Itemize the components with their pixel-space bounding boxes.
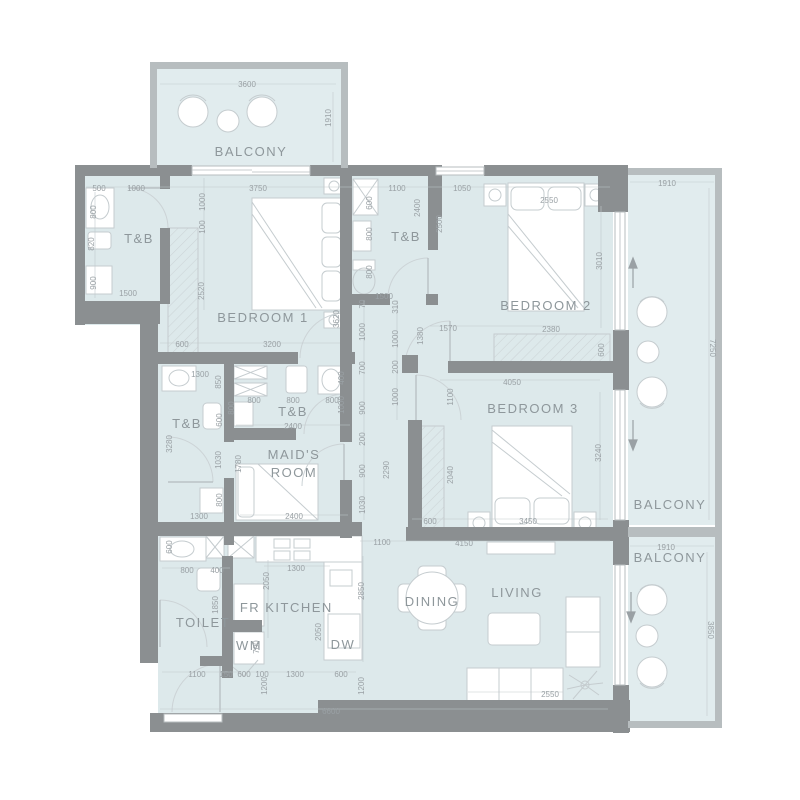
dimension-label: 1200 — [260, 677, 269, 695]
dimension-label: 900 — [358, 401, 367, 415]
kitchen-counter — [256, 536, 362, 562]
wardrobe-bedroom1 — [168, 228, 198, 354]
dimension-label: 6600 — [322, 707, 340, 716]
dimension-label: 500 — [92, 184, 106, 193]
dimension-label: 800 — [286, 396, 300, 405]
tv-console — [487, 542, 555, 554]
dimension-label: 1200 — [357, 677, 366, 695]
dimension-label: 1300 — [287, 564, 305, 573]
dimension-label: 600 — [365, 196, 374, 210]
dimension-label: 1500 — [375, 292, 393, 301]
dimension-label: 850 — [214, 375, 223, 389]
dimension-label: 700 — [252, 640, 261, 654]
dimension-label: 2550 — [541, 690, 559, 699]
dimension-label: 1380 — [416, 327, 425, 345]
dimension-label: 1000 — [127, 184, 145, 193]
dimension-label: 2500 — [435, 215, 444, 233]
dimension-label: 1780 — [234, 455, 243, 473]
dimension-label: 600 — [597, 343, 606, 357]
dimension-label: 1000 — [391, 330, 400, 348]
dimension-label: 3600 — [238, 80, 256, 89]
dimension-label: 2290 — [382, 461, 391, 479]
dimension-label: 600 — [215, 413, 224, 427]
room-label-dining: DINING — [405, 594, 460, 609]
dimension-label: 1850 — [211, 596, 220, 614]
dimension-label: 400 — [337, 371, 346, 385]
balcony-sliding-door — [192, 166, 310, 175]
dimension-label: 900 — [89, 276, 98, 290]
dimension-label: 70 — [358, 299, 367, 308]
room-label-maids-room-line2: ROOM — [271, 465, 317, 480]
dimension-label: 3750 — [249, 184, 267, 193]
dimension-label: 200 — [391, 360, 400, 374]
dimension-label: 820 — [87, 237, 96, 251]
dimension-label: 1300 — [190, 512, 208, 521]
dimension-label: 3620 — [332, 310, 341, 328]
toilet-fixture — [286, 366, 307, 393]
dimension-label: 600 — [165, 540, 174, 554]
room-label-dw: DW — [331, 637, 356, 652]
dimension-label: 2520 — [197, 282, 206, 300]
dimension-label: 1000 — [391, 388, 400, 406]
dimension-label: 2400 — [284, 422, 302, 431]
dimension-label: 310 — [391, 300, 400, 314]
dimension-label: 3240 — [594, 444, 603, 462]
dimension-label: 2400 — [285, 512, 303, 521]
dimension-label: 1910 — [657, 543, 675, 552]
dimension-label: 2050 — [314, 623, 323, 641]
room-label-living: LIVING — [491, 585, 543, 600]
room-label-balcony-right: BALCONY — [634, 497, 707, 512]
dimension-label: 1000 — [198, 193, 207, 211]
dimension-label: 1300 — [286, 670, 304, 679]
dimension-label: 800 — [89, 205, 98, 219]
dimension-label: 2380 — [542, 325, 560, 334]
dimension-label: 4050 — [503, 378, 521, 387]
room-label-tb-4: T&B — [278, 404, 308, 419]
dimension-label: 3850 — [706, 621, 715, 639]
dimension-label: 3010 — [595, 252, 604, 270]
dimension-label: 800 — [180, 566, 194, 575]
dimension-label: 1500 — [119, 289, 137, 298]
dimension-label: 900 — [358, 464, 367, 478]
room-label-bedroom-3: BEDROOM 3 — [487, 401, 579, 416]
dimension-label: 1050 — [453, 184, 471, 193]
room-label-maids-room-line1: MAID'S — [268, 447, 321, 462]
dimension-label: 600 — [175, 340, 189, 349]
room-label-tb-2: T&B — [391, 229, 421, 244]
wardrobe-bedroom2 — [494, 334, 610, 362]
dimension-label: 2400 — [413, 199, 422, 217]
dimension-label: 1100 — [446, 388, 455, 406]
dimension-label: 800 — [325, 396, 339, 405]
room-label-tb-1: T&B — [124, 231, 154, 246]
entry-threshold — [164, 714, 222, 722]
dimension-label: 2040 — [446, 466, 455, 484]
dimension-label: 800 — [215, 493, 224, 507]
dimension-label: 100 — [198, 220, 207, 234]
room-label-toilet: TOILET — [176, 615, 230, 630]
room-label-balcony-bottom: BALCONY — [634, 550, 707, 565]
dimension-label: 1000 — [358, 323, 367, 341]
dimension-label: 600 — [334, 670, 348, 679]
dimension-label: 800 — [247, 396, 261, 405]
balcony-table — [217, 110, 239, 132]
dimension-label: 1100 — [388, 184, 406, 193]
dimension-label: 200 — [358, 432, 367, 446]
dimension-label: 700 — [358, 361, 367, 375]
dimension-label: 800 — [365, 227, 374, 241]
dimension-label: 1910 — [324, 109, 333, 127]
dimension-label: 3280 — [165, 435, 174, 453]
dimension-label: 1100 — [188, 670, 206, 679]
dimension-label: 1300 — [191, 370, 209, 379]
dimension-label: 400 — [210, 566, 224, 575]
dimension-label: 1030 — [214, 451, 223, 469]
dimension-label: 800 — [365, 265, 374, 279]
room-label-bedroom-2: BEDROOM 2 — [500, 298, 592, 313]
dimension-label: 1100 — [373, 538, 391, 547]
dimension-label: 3200 — [263, 340, 281, 349]
dimension-label: 4150 — [455, 539, 473, 548]
dimension-label: 2850 — [357, 582, 366, 600]
room-label-tb-3: T&B — [172, 416, 202, 431]
dimension-label: 800 — [227, 401, 236, 415]
floor-plan-page: BALCONYT&BBEDROOM 1T&BBEDROOM 2BALCONYT&… — [0, 0, 800, 800]
dimension-label: 150 — [219, 670, 233, 679]
dimension-label: 2050 — [262, 572, 271, 590]
dimension-label: 600 — [237, 670, 251, 679]
room-label-balcony-top: BALCONY — [215, 144, 288, 159]
room-label-kitchen: KITCHEN — [265, 600, 333, 615]
dimension-label: 1030 — [358, 496, 367, 514]
dimension-label: 2550 — [540, 196, 558, 205]
dimension-label: 600 — [423, 517, 437, 526]
room-label-bedroom-1: BEDROOM 1 — [217, 310, 309, 325]
dimension-label: 1570 — [439, 324, 457, 333]
room-label-fr: FR — [240, 600, 260, 615]
dimension-label: 7250 — [708, 339, 717, 357]
floor-plan-drawing: BALCONYT&BBEDROOM 1T&BBEDROOM 2BALCONYT&… — [0, 0, 800, 800]
coffee-table — [488, 613, 540, 645]
dimension-label: 1910 — [658, 179, 676, 188]
dimension-label: 3450 — [519, 517, 537, 526]
